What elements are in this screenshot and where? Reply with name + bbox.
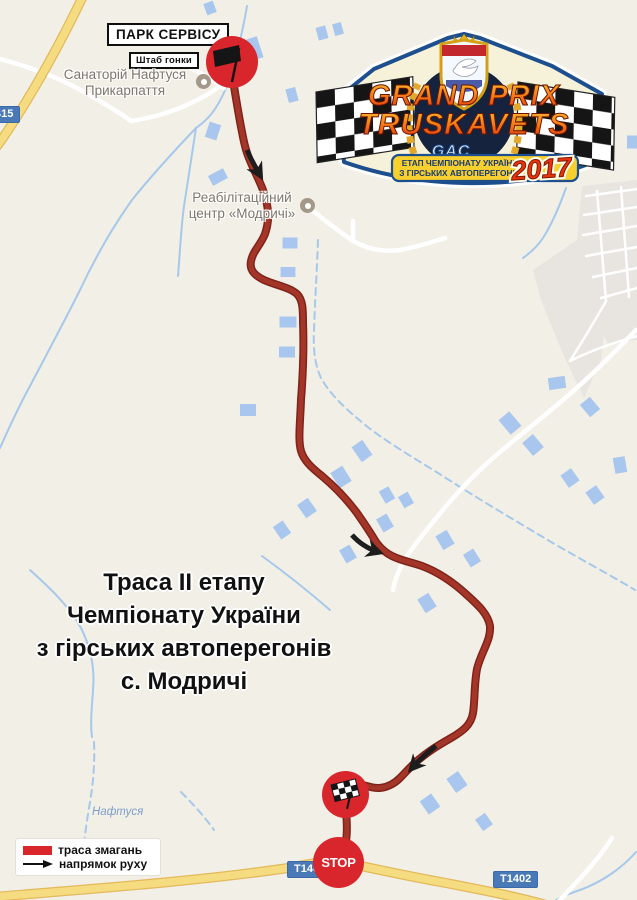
stop-marker: STOP — [313, 837, 364, 888]
stage-title-line3: з гірських автоперегонів — [18, 632, 350, 665]
legend-route-label: траса змагань — [58, 843, 142, 857]
plate-title-bottom: TRUSKAVETS — [358, 108, 569, 141]
legend: траса змагань напрямок руху — [15, 838, 161, 876]
stage-title-line1: Траса II етапу — [18, 566, 350, 599]
legend-direction-label: напрямок руху — [59, 857, 147, 871]
stop-marker-label: STOP — [321, 855, 355, 870]
route-color-swatch — [23, 846, 52, 855]
plate-subtitle-line1: ЕТАП ЧЕМПІОНАТУ УКРАЇНИ — [402, 158, 519, 168]
stage-title: Траса II етапу Чемпіонату України з гірс… — [18, 566, 350, 698]
finish-flag-icon — [322, 771, 369, 818]
plate-year: 2017 — [509, 152, 574, 186]
start-flag-icon — [206, 36, 258, 88]
rally-plate: GRAND PRIX TRUSKAVETS GAC ЕТАП ЧЕМПІОНАТ… — [314, 26, 620, 190]
start-marker — [206, 36, 258, 88]
stage-title-line4: с. Модричі — [18, 665, 350, 698]
rehab-center-label: Реабілітаційний центр «Модричі» — [178, 190, 306, 221]
rally-plate-graphic: GRAND PRIX TRUSKAVETS GAC ЕТАП ЧЕМПІОНАТ… — [314, 26, 620, 190]
river-label: Нафтуся — [92, 806, 143, 818]
route-map-poster: ПАРК СЕРВІСУ Штаб гонки Санаторій Нафтус… — [0, 0, 637, 900]
road-chip-415: 415 — [0, 106, 20, 123]
finish-marker — [322, 771, 369, 818]
direction-arrow-icon — [23, 859, 53, 869]
urban-layer — [533, 180, 637, 398]
sanatorium-label: Санаторій Нафтуся Прикарпаття — [55, 67, 195, 98]
stream-dashed-layer — [83, 240, 635, 856]
stage-title-line2: Чемпіонату України — [18, 599, 350, 632]
road-chip-t1402-right: T1402 — [493, 871, 538, 888]
plate-subtitle-line2: З ГІРСЬКИХ АВТОПЕРЕГОНІВ — [399, 168, 521, 178]
